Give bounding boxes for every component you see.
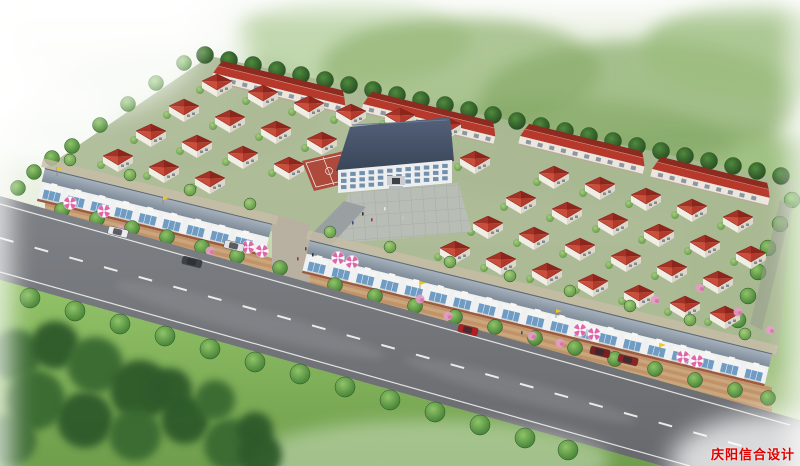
roadside-tree xyxy=(110,314,130,334)
inner-tree xyxy=(684,314,696,326)
public-building-window xyxy=(405,173,411,177)
boundary-tree xyxy=(740,288,756,304)
roadside-tree xyxy=(425,402,445,422)
entrance-door xyxy=(392,178,400,184)
roadside-tree xyxy=(245,352,265,372)
roadside-tree xyxy=(558,440,578,460)
inner-tree xyxy=(444,256,456,268)
public-building-window xyxy=(415,179,421,183)
public-building-window xyxy=(369,183,375,187)
street-tree xyxy=(488,320,503,335)
boundary-tree xyxy=(725,158,742,175)
mist-right-edge xyxy=(788,0,800,466)
flower-bush xyxy=(734,308,743,317)
flower-bush xyxy=(528,332,537,341)
bush-bloom xyxy=(448,315,452,319)
public-building-window xyxy=(396,168,402,172)
boundary-tree xyxy=(341,77,358,94)
public-building-window xyxy=(341,179,347,183)
pedestrian xyxy=(384,207,386,211)
inner-tree xyxy=(184,184,196,196)
public-building-window xyxy=(378,176,384,180)
public-building-window xyxy=(341,185,347,189)
boundary-tree xyxy=(509,113,526,130)
flower-bush xyxy=(416,295,425,304)
pedestrian xyxy=(312,253,314,257)
public-building-window xyxy=(350,172,356,176)
sun-umbrella xyxy=(677,351,690,364)
inner-tree xyxy=(244,198,256,210)
inner-tree xyxy=(124,169,136,181)
pedestrian xyxy=(521,331,523,335)
public-building-window xyxy=(433,177,439,181)
forest-tree xyxy=(195,380,235,420)
boundary-tree xyxy=(93,118,108,133)
public-building-window xyxy=(350,184,356,188)
boundary-tree xyxy=(749,163,766,180)
boundary-tree xyxy=(27,165,42,180)
public-building-window xyxy=(415,173,421,177)
sun-umbrella xyxy=(332,252,345,265)
public-building-window xyxy=(442,170,448,174)
bush-bloom xyxy=(210,250,214,254)
public-building-window xyxy=(359,171,365,175)
roadside-tree xyxy=(155,326,175,346)
boundary-tree xyxy=(773,168,790,185)
forest-tree xyxy=(148,368,192,412)
public-building-window xyxy=(442,164,448,168)
bush-bloom xyxy=(700,287,704,291)
inner-tree xyxy=(624,300,636,312)
public-building-window xyxy=(405,180,411,184)
public-building-window xyxy=(442,176,448,180)
public-building-window xyxy=(424,166,430,170)
boundary-tree xyxy=(653,143,670,160)
flower-bush xyxy=(444,312,453,321)
roadside-tree xyxy=(515,428,535,448)
pedestrian xyxy=(362,212,364,216)
roadside-tree xyxy=(20,288,40,308)
sun-umbrella xyxy=(588,328,601,341)
sun-umbrella xyxy=(574,324,587,337)
roadside-tree xyxy=(200,339,220,359)
street-tree xyxy=(648,362,663,377)
pedestrian xyxy=(371,218,373,222)
roadside-tree xyxy=(290,364,310,384)
public-building-window xyxy=(359,184,365,188)
street-tree xyxy=(568,341,583,356)
public-building-window xyxy=(405,167,411,171)
bush-bloom xyxy=(738,311,742,315)
public-building-window xyxy=(359,177,365,181)
boundary-tree xyxy=(11,181,26,196)
bush-bloom xyxy=(532,335,536,339)
bush-bloom xyxy=(770,329,774,333)
roadside-tree xyxy=(65,301,85,321)
public-building-window xyxy=(378,182,384,186)
designer-watermark: 庆阳信合设计 xyxy=(711,444,795,463)
inner-tree xyxy=(739,328,751,340)
public-building-window xyxy=(415,166,421,170)
boundary-tree xyxy=(701,153,718,170)
public-building-window xyxy=(350,178,356,182)
public-building-window xyxy=(387,169,393,173)
flower-bush xyxy=(556,339,565,348)
pedestrian xyxy=(297,257,299,261)
inner-tree xyxy=(64,154,76,166)
forest-tree xyxy=(237,412,273,448)
public-building-window xyxy=(369,170,375,174)
sun-umbrella xyxy=(346,256,359,269)
inner-tree xyxy=(564,285,576,297)
sun-umbrella xyxy=(64,197,77,210)
public-building-window xyxy=(369,177,375,181)
inner-tree xyxy=(384,241,396,253)
roadside-tree xyxy=(335,377,355,397)
street-tree xyxy=(728,383,743,398)
sun-umbrella xyxy=(256,245,269,258)
boundary-tree xyxy=(65,139,80,154)
sun-umbrella xyxy=(98,205,111,218)
bush-bloom xyxy=(420,298,424,302)
inner-tree xyxy=(504,270,516,282)
pedestrian xyxy=(305,247,307,251)
roadside-tree xyxy=(380,390,400,410)
forest-tree xyxy=(109,409,161,461)
street-tree xyxy=(688,373,703,388)
public-building-window xyxy=(378,170,384,174)
flower-bush xyxy=(766,326,775,335)
scene-svg xyxy=(0,0,800,466)
flower-bush xyxy=(651,296,660,305)
public-building-window xyxy=(424,172,430,176)
roadside-tree xyxy=(470,415,490,435)
inner-tree xyxy=(324,226,336,238)
public-building-window xyxy=(433,171,439,175)
public-building-window xyxy=(433,165,439,169)
entrance-steps xyxy=(389,186,403,189)
public-building-window xyxy=(341,173,347,177)
pedestrian xyxy=(402,216,404,220)
sun-umbrella xyxy=(691,355,704,368)
pedestrian xyxy=(352,221,354,225)
bush-bloom xyxy=(655,299,659,303)
aerial-rendering-canvas: 庆阳信合设计 xyxy=(0,0,800,466)
forest-tree xyxy=(57,392,113,448)
street-tree xyxy=(761,391,776,406)
bush-bloom xyxy=(560,342,564,346)
flower-bush xyxy=(696,284,705,293)
public-building-window xyxy=(424,178,430,182)
